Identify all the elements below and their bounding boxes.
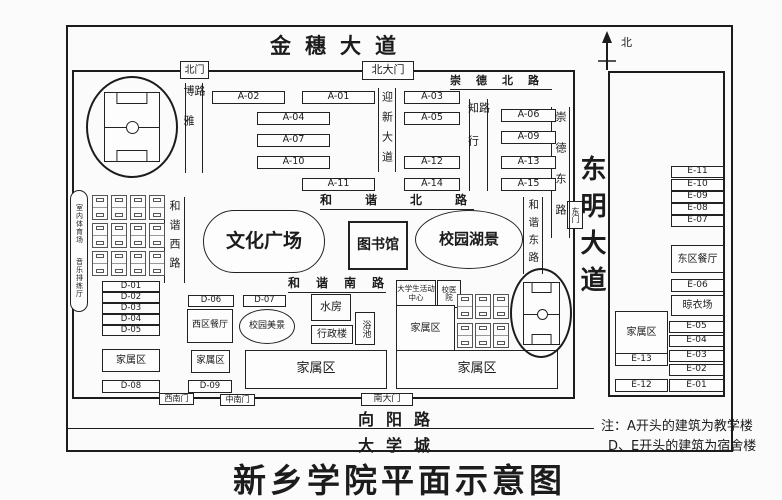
bath-house-label: 浴池 xyxy=(361,320,370,338)
building-a-09: A-09 xyxy=(501,131,556,144)
building-d-05: D-05 xyxy=(102,325,160,336)
road-jinsui-avenue: 金穗大道 xyxy=(200,30,480,60)
building-a-07: A-07 xyxy=(257,134,330,147)
building-e-05: E-05 xyxy=(669,321,724,333)
road-yingxin: 迎新大道 xyxy=(378,88,396,172)
football-field-northwest xyxy=(104,92,160,162)
building-e-13: E-13 xyxy=(615,353,668,366)
basketball-court-icon xyxy=(111,251,127,276)
basketball-court-icon xyxy=(130,195,146,220)
building-a-15: A-15 xyxy=(501,178,556,191)
road-zhixing: 知行路 xyxy=(469,99,488,191)
campus-lake: 校园湖景 xyxy=(415,210,523,269)
indoor-gym-label: 室内体育场 xyxy=(76,204,83,244)
road-yingxin-label: 迎新大道 xyxy=(382,88,393,171)
building-e-06: E-06 xyxy=(671,279,724,292)
page-title: 新乡学院平面示意图 xyxy=(66,454,733,500)
building-a-11: A-11 xyxy=(302,178,375,191)
family-area-west: 家属区 xyxy=(102,349,160,372)
building-d-09: D-09 xyxy=(188,380,232,393)
basketball-court-icon xyxy=(130,223,146,248)
admin-building: 行政楼 xyxy=(311,325,353,344)
road-chongde-east: 崇德东路 xyxy=(551,107,570,238)
building-d-06: D-06 xyxy=(188,295,234,307)
basketball-court-icon xyxy=(475,323,491,348)
building-e-12: E-12 xyxy=(615,379,668,392)
road-chongde-north: 崇德北路 xyxy=(450,72,552,90)
building-d-04: D-04 xyxy=(102,314,160,325)
building-d-03: D-03 xyxy=(102,303,160,314)
building-a-12: A-12 xyxy=(404,156,460,169)
family-area-center: 家属区 xyxy=(245,350,387,389)
building-e-07: E-07 xyxy=(671,215,724,227)
gate-south-middle: 中南门 xyxy=(220,394,255,406)
gate-south-main: 南大门 xyxy=(361,393,413,406)
basketball-court-icon xyxy=(149,195,165,220)
building-a-06: A-06 xyxy=(501,109,556,122)
drying-yard: 晾衣场 xyxy=(671,295,724,316)
road-hexie-east: 和谐东路 xyxy=(523,197,543,274)
basketball-court-icon xyxy=(457,294,473,319)
student-activity-center: 大学生活动中心 xyxy=(396,280,436,307)
north-arrow-icon xyxy=(596,30,618,72)
building-e-01: E-01 xyxy=(669,379,724,392)
basketball-court-icon xyxy=(493,294,509,319)
building-e-08: E-08 xyxy=(671,203,724,215)
gate-southwest: 西南门 xyxy=(159,393,194,405)
north-label: 北 xyxy=(621,34,632,50)
road-hexie-west-label: 和谐西路 xyxy=(169,197,180,276)
building-d-01: D-01 xyxy=(102,281,160,292)
family-area-mid: 家属区 xyxy=(396,305,455,352)
basketball-court-icon xyxy=(111,195,127,220)
building-a-01: A-01 xyxy=(302,91,375,104)
road-dongming-label: 东明大道 xyxy=(578,155,604,420)
campus-beauty: 校园美景 xyxy=(239,309,295,344)
basketball-court-icon xyxy=(111,223,127,248)
building-d-02: D-02 xyxy=(102,292,160,303)
football-field-southeast xyxy=(523,282,560,345)
building-a-05: A-05 xyxy=(404,112,460,125)
basketball-court-icon xyxy=(149,223,165,248)
building-d-07: D-07 xyxy=(243,295,286,307)
campus-map: 金穗大道 北 北门 北大门 东门 西南门 中南门 南大门 博雅路 迎新大道 知行… xyxy=(0,0,782,500)
road-chongde-east-label: 崇德东路 xyxy=(555,107,566,235)
building-e-10: E-10 xyxy=(671,179,724,191)
music-hall-label: 音乐排练厅 xyxy=(76,258,83,298)
road-dongming: 东明大道 xyxy=(577,155,605,420)
gate-north: 北门 xyxy=(180,61,209,79)
family-area-east: 家属区 xyxy=(615,311,668,354)
east-dining-hall: 东区餐厅 xyxy=(671,245,724,273)
legend-note-line2: D、E开头的建筑为宿舍楼 xyxy=(608,435,756,454)
building-a-02: A-02 xyxy=(212,91,285,104)
water-room: 水房 xyxy=(311,294,351,321)
building-e-11: E-11 xyxy=(671,166,724,178)
road-hexie-east-label: 和谐东路 xyxy=(528,197,539,269)
library: 图书馆 xyxy=(348,221,408,270)
building-a-14: A-14 xyxy=(404,178,460,191)
gate-north-main: 北大门 xyxy=(362,61,414,80)
basketball-court-icon xyxy=(475,294,491,319)
family-area-small: 家属区 xyxy=(191,350,230,373)
road-hexie-south: 和谐南路 xyxy=(288,274,386,293)
culture-square: 文化广场 xyxy=(203,210,325,273)
basketball-court-icon xyxy=(457,323,473,348)
daxuecheng-divider xyxy=(66,428,594,429)
building-a-04: A-04 xyxy=(257,112,330,125)
bath-house: 浴池 xyxy=(355,312,375,345)
basketball-court-icon xyxy=(92,223,108,248)
road-boya-label: 博雅路 xyxy=(183,83,205,173)
road-boya: 博雅路 xyxy=(185,83,203,173)
road-hexie-west: 和谐西路 xyxy=(164,197,185,283)
area-daxuecheng: 大学城 xyxy=(300,432,500,456)
indoor-gym-building: 室内体育场 音乐排练厅 xyxy=(70,190,88,312)
basketball-court-icon xyxy=(130,251,146,276)
road-zhixing-label: 知行路 xyxy=(468,99,490,191)
building-e-02: E-02 xyxy=(669,364,724,376)
building-a-10: A-10 xyxy=(257,156,330,169)
building-e-09: E-09 xyxy=(671,191,724,203)
building-a-03: A-03 xyxy=(404,91,460,104)
building-d-08: D-08 xyxy=(102,380,160,393)
building-e-04: E-04 xyxy=(669,335,724,347)
building-e-03: E-03 xyxy=(669,350,724,362)
road-xiangyang: 向阳路 xyxy=(300,406,500,430)
basketball-court-icon xyxy=(149,251,165,276)
basketball-court-icon xyxy=(92,251,108,276)
road-hexie-north: 和谐北路 xyxy=(320,191,474,210)
basketball-court-icon xyxy=(92,195,108,220)
building-a-13: A-13 xyxy=(501,156,556,169)
basketball-court-icon xyxy=(493,323,509,348)
west-dining-hall: 西区餐厅 xyxy=(187,309,233,343)
legend-note-line1: 注：A开头的建筑为教学楼 xyxy=(601,415,753,434)
